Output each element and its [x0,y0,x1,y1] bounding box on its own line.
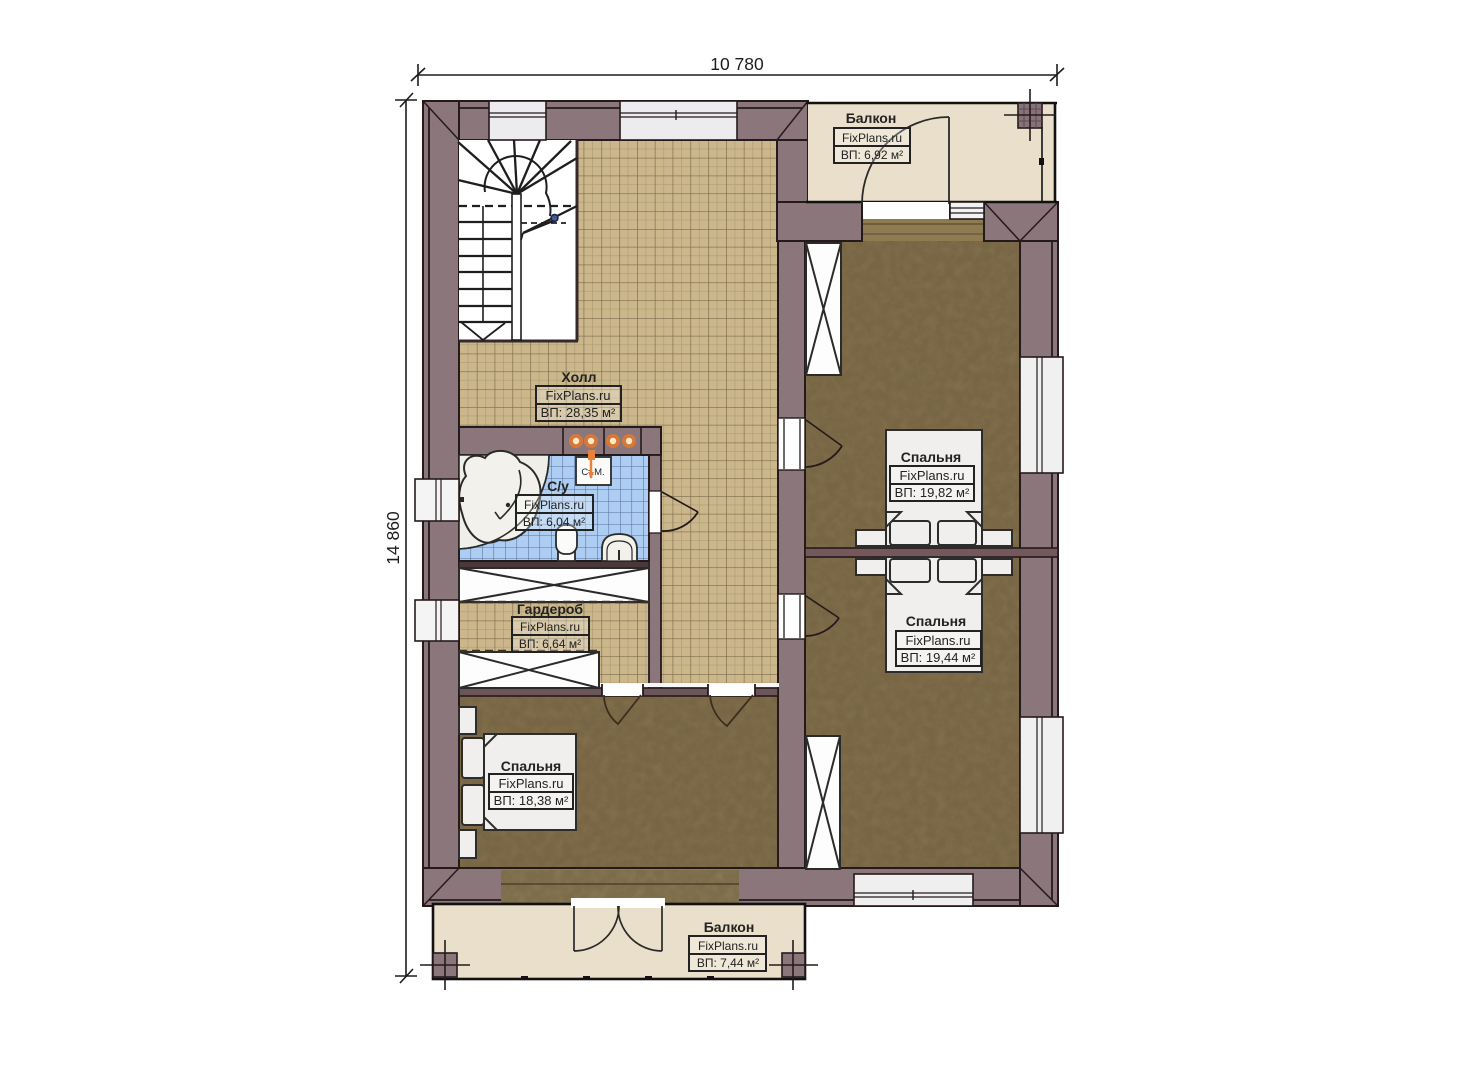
svg-text:FixPlans.ru: FixPlans.ru [905,633,970,648]
svg-text:ВП: 6,92 м²: ВП: 6,92 м² [841,148,903,162]
svg-text:ВП: 6,04 м²: ВП: 6,04 м² [523,515,585,529]
svg-text:Гардероб: Гардероб [517,601,584,617]
svg-text:FixPlans.ru: FixPlans.ru [524,498,584,512]
svg-text:ВП: 28,35 м²: ВП: 28,35 м² [541,405,616,420]
svg-text:ВП: 18,38 м²: ВП: 18,38 м² [494,793,569,808]
svg-text:FixPlans.ru: FixPlans.ru [545,388,610,403]
svg-text:Спальня: Спальня [906,613,966,629]
svg-text:Балкон: Балкон [704,919,755,935]
svg-text:Спальня: Спальня [501,758,561,774]
svg-text:ВП: 6,64 м²: ВП: 6,64 м² [519,637,581,651]
svg-text:FixPlans.ru: FixPlans.ru [520,620,580,634]
svg-text:ВП: 7,44 м²: ВП: 7,44 м² [697,956,759,970]
svg-text:10 780: 10 780 [710,54,764,74]
svg-text:С/у: С/у [547,478,569,494]
svg-text:Холл: Холл [561,369,596,385]
svg-text:Балкон: Балкон [846,110,897,126]
svg-text:FixPlans.ru: FixPlans.ru [842,131,902,145]
svg-text:FixPlans.ru: FixPlans.ru [899,468,964,483]
svg-text:ВП: 19,44 м²: ВП: 19,44 м² [901,650,976,665]
svg-text:Спальня: Спальня [901,449,961,465]
svg-text:FixPlans.ru: FixPlans.ru [498,776,563,791]
svg-text:14 860: 14 860 [383,511,403,565]
svg-text:FixPlans.ru: FixPlans.ru [698,939,758,953]
svg-text:ВП: 19,82 м²: ВП: 19,82 м² [895,485,970,500]
